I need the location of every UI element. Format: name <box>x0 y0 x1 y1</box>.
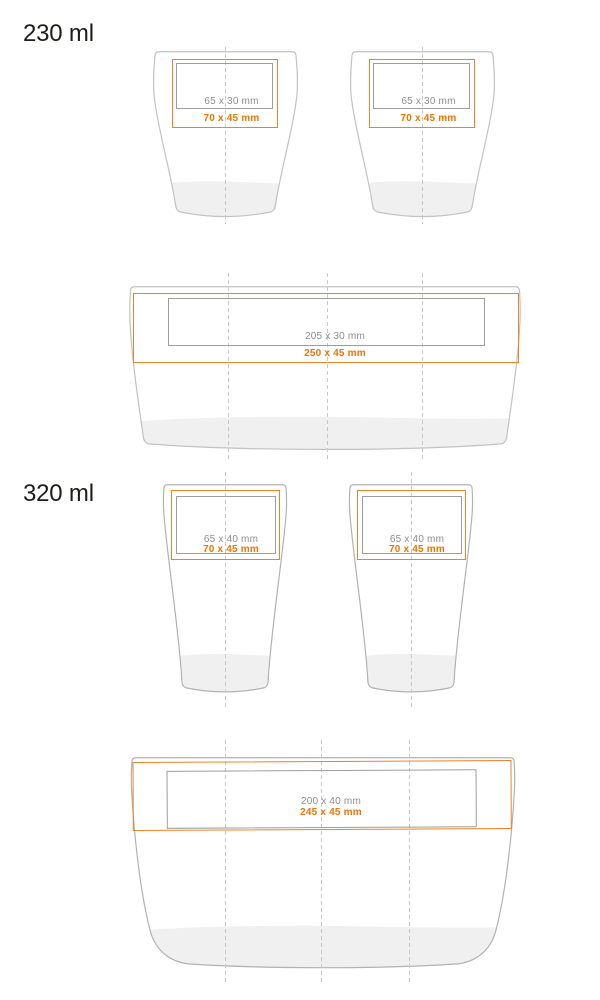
print-area-dimension-label: 205 x 30 mm <box>139 331 531 343</box>
print-boxes-group <box>130 756 515 970</box>
cup-320-wrap-view: 200 x 40 mm 245 x 45 mm <box>131 757 515 969</box>
max-area-dimension-label: 70 x 45 mm <box>356 113 501 125</box>
print-area-dimension-label: 200 x 40 mm <box>139 796 523 807</box>
print-area-dimension-label: 65 x 30 mm <box>159 96 304 108</box>
max-area-dimension-label: 250 x 45 mm <box>139 348 531 360</box>
max-area-dimension-label: 70 x 45 mm <box>159 113 304 125</box>
section-label-230ml: 230 ml <box>23 21 94 47</box>
cup-230-front-left: 65 x 30 mm 70 x 45 mm <box>153 51 298 220</box>
cup-320-front-right: 65 x 40 mm 70 x 45 mm <box>349 484 473 695</box>
cup-base-shading <box>126 417 524 450</box>
max-area-dimension-label: 245 x 45 mm <box>139 807 523 818</box>
max-area-dimension-label: 70 x 45 mm <box>355 544 479 555</box>
cup-230-front-right: 65 x 30 mm 70 x 45 mm <box>350 51 495 220</box>
max-area-dimension-label: 70 x 45 mm <box>169 544 293 555</box>
cup-230-wrap-view: 205 x 30 mm 250 x 45 mm <box>129 286 521 450</box>
cup-320-front-left: 65 x 40 mm 70 x 45 mm <box>163 484 287 695</box>
print-area-diagram: 230 ml 65 x 30 mm 70 x 45 mm 65 x 30 mm … <box>0 0 600 1000</box>
print-area-dimension-label: 65 x 30 mm <box>356 96 501 108</box>
section-label-320ml: 320 ml <box>23 481 94 507</box>
